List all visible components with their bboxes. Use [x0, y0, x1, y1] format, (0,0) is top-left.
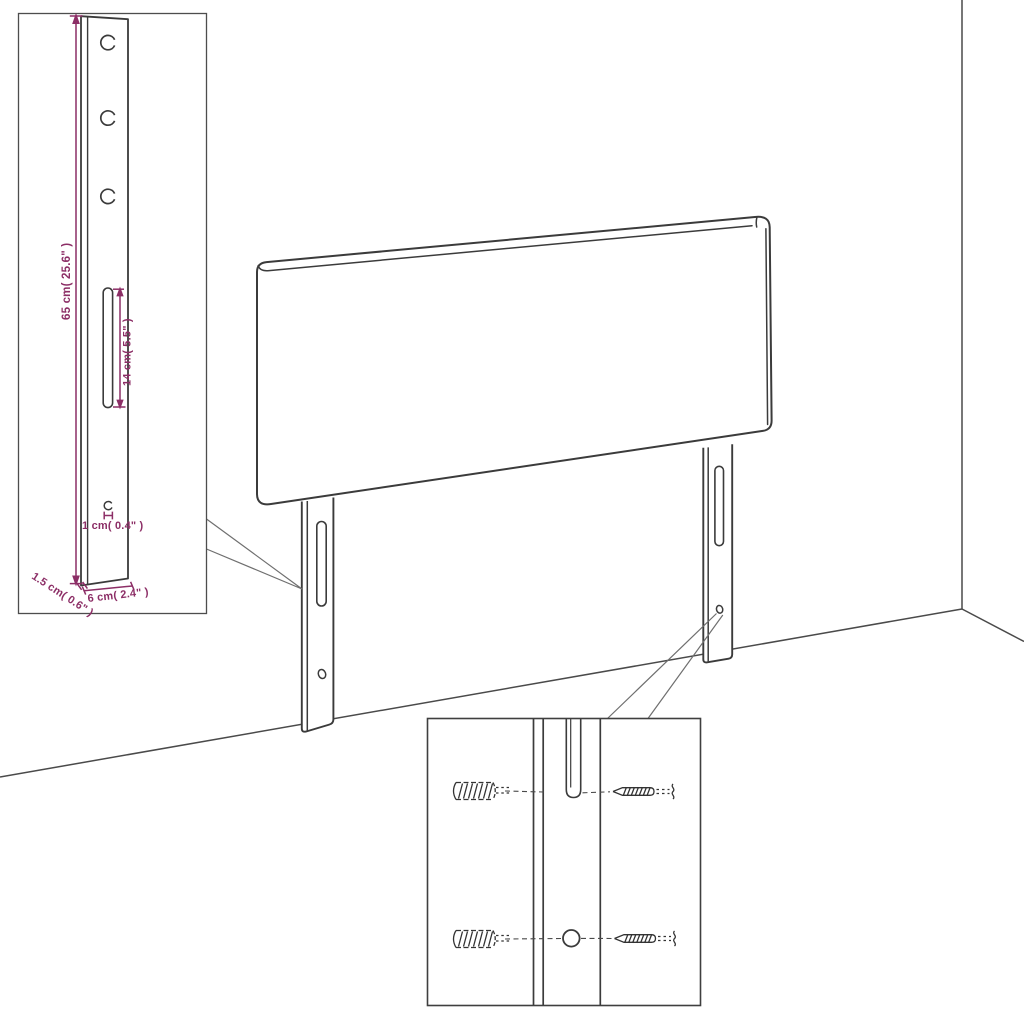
- headboard-leg-left: [302, 498, 334, 732]
- detail-leg-hole-middle: [101, 111, 115, 125]
- detail-leg-drawing: [81, 16, 128, 585]
- assembly-diagram-page: 65 cm( 25.6" ) 14 cm( 5.5" ) 1 cm( 0.4" …: [0, 0, 1024, 1024]
- headboard-assembly-diagram: 65 cm( 25.6" ) 14 cm( 5.5" ) 1 cm( 0.4" …: [0, 0, 1024, 1024]
- label-hole-diameter: 1 cm( 0.4" ): [82, 520, 144, 532]
- detail-leg-hole-top: [101, 35, 115, 49]
- leg-right-slot: [715, 466, 724, 545]
- detail-view-mounting: [428, 719, 701, 1006]
- detail-leg-small-hole: [104, 502, 112, 510]
- callout-wedges: [207, 519, 723, 719]
- detail-leg-slot: [103, 288, 112, 408]
- panel-outline: [257, 217, 772, 505]
- label-leg-height: 65 cm( 25.6" ): [61, 243, 73, 320]
- detail-view-leg: 65 cm( 25.6" ) 14 cm( 5.5" ) 1 cm( 0.4" …: [19, 14, 207, 620]
- label-slot-length: 14 cm( 5.5" ): [122, 318, 134, 386]
- headboard-panel: [257, 217, 772, 505]
- headboard-leg-right: [703, 444, 732, 662]
- leg-left-slot: [317, 522, 326, 607]
- panel-right-cap-line: [756, 217, 757, 227]
- detail-mounting-frame: [428, 719, 701, 1006]
- floor-line-right: [962, 609, 1024, 642]
- detail-leg-hole-bottom: [101, 189, 115, 203]
- callout-wedge-to-left-leg-slot: [207, 519, 303, 589]
